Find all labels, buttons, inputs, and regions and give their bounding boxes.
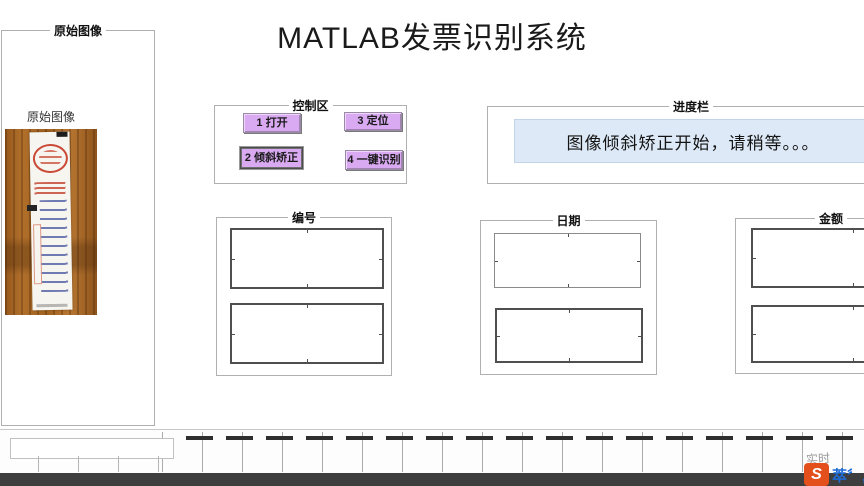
red-stamp (33, 144, 69, 174)
locate-button[interactable]: 3 定位 (344, 112, 402, 131)
receipt-blue-text (40, 200, 69, 292)
receipt-top-mark (56, 132, 67, 137)
date-result-box-bottom (495, 308, 643, 363)
receipt (29, 132, 72, 311)
watermark-logo-text: 萃〞, (832, 465, 864, 486)
amount-result-box-top (751, 228, 864, 288)
panel-control: 控制区 1 打开 2 倾斜矫正 3 定位 4 一键识别 (214, 105, 407, 184)
panel-original-image: 原始图像 原始图像 (1, 30, 155, 426)
progress-message: 图像倾斜矫正开始，请稍等。。。 (567, 129, 820, 154)
progress-message-box: 图像倾斜矫正开始，请稍等。。。 (514, 119, 864, 163)
panel-date-label: 日期 (552, 212, 584, 229)
recognize-button[interactable]: 4 一键识别 (345, 150, 403, 170)
timeline-strip (0, 429, 864, 474)
panel-original-image-label: 原始图像 (50, 22, 106, 39)
watermark-logo-icon: S (804, 463, 829, 486)
date-result-box-top (494, 233, 641, 288)
timeline-left-ticks (38, 456, 163, 472)
receipt-left-mark (27, 205, 37, 211)
amount-result-box-bottom (751, 305, 864, 363)
panel-progress-label: 进度栏 (669, 98, 713, 115)
panel-amount: 金额 (735, 218, 864, 374)
panel-amount-label: 金额 (815, 210, 847, 227)
panel-progress: 进度栏 图像倾斜矫正开始，请稍等。。。 (487, 106, 864, 184)
timeline-thumbnail-dashes (186, 436, 864, 440)
receipt-photo (5, 129, 97, 315)
image-axes-title: 原始图像 (4, 108, 98, 125)
panel-number-label: 编号 (288, 209, 320, 226)
number-result-box-bottom (230, 303, 384, 364)
receipt-red-outline (33, 224, 42, 284)
panel-number: 编号 (216, 217, 392, 376)
receipt-footer-text (36, 304, 67, 308)
panel-date: 日期 (480, 220, 657, 375)
bottom-dark-bar (0, 473, 864, 486)
receipt-red-text (34, 182, 65, 196)
panel-control-label: 控制区 (288, 97, 332, 114)
tilt-correction-button[interactable]: 2 倾斜矫正 (240, 147, 303, 169)
open-button[interactable]: 1 打开 (243, 113, 301, 133)
app-window: MATLAB发票识别系统 原始图像 原始图像 控制区 1 打开 2 倾斜矫正 3… (0, 0, 864, 486)
number-result-box-top (230, 228, 384, 289)
